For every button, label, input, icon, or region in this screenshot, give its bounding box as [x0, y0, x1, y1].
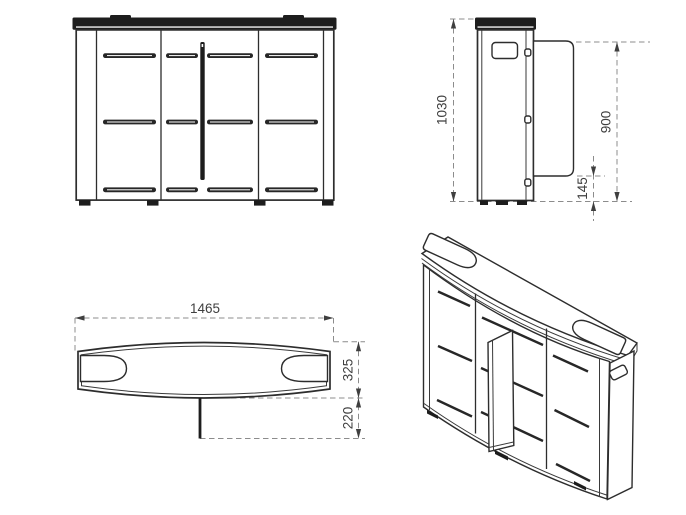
technical-drawing-canvas: 1030 900 145: [0, 0, 686, 515]
dim-label-door-top-height: 900: [599, 111, 614, 134]
cabinet-foot: [480, 201, 488, 206]
dim-label-door-open: 220: [341, 407, 356, 430]
dim-label-total-width: 1465: [190, 301, 220, 316]
top-view: 1465 325 220: [75, 301, 365, 439]
isometric-view: [422, 232, 638, 499]
door-slat-handle: [166, 187, 198, 192]
cabinet-foot: [496, 201, 508, 206]
hinge: [525, 116, 531, 123]
door-slat-handle: [103, 120, 156, 125]
top-cap-side: [475, 18, 536, 30]
door-slat-handle: [103, 187, 156, 192]
hinge: [525, 49, 531, 56]
hinge: [525, 179, 531, 186]
door-slat-handle: [265, 120, 318, 125]
door-slat-handle: [207, 53, 253, 58]
top-cap-highlight: [76, 26, 333, 27]
door-slat-handle: [207, 120, 253, 125]
door-slat-handle: [166, 53, 198, 58]
dim-total-width: 1465: [75, 301, 334, 321]
top-cap: [73, 18, 337, 30]
center-handle: [200, 42, 204, 180]
door-slat-handle: [103, 53, 156, 58]
cabinet-foot: [147, 200, 159, 206]
front-view: [73, 15, 337, 206]
drawing-svg: 1030 900 145: [0, 0, 686, 515]
door-slat-handle: [265, 187, 318, 192]
top-inset-right: [282, 356, 328, 382]
dim-label-depth: 325: [341, 359, 356, 382]
door-slat-handle: [265, 53, 318, 58]
top-inset-left: [81, 356, 127, 382]
dim-total-height: 1030: [435, 19, 457, 202]
door-slat-handle: [166, 120, 198, 125]
dim-door-bottom-offset: 145: [575, 156, 605, 221]
cabinet-foot: [322, 200, 334, 206]
iso-open-door: [488, 331, 514, 452]
cabinet-foot: [79, 200, 91, 206]
side-view: 1030 900 145: [435, 18, 651, 222]
dim-label-door-bottom-offset: 145: [575, 177, 590, 200]
center-handle-highlight: [202, 44, 204, 47]
open-door-side: [534, 41, 574, 176]
side-inset-panel: [492, 43, 518, 59]
door-slat-handle: [207, 187, 253, 192]
dim-label-total-height: 1030: [435, 95, 450, 125]
top-cap-highlight: [478, 26, 534, 27]
cabinet-foot: [254, 200, 266, 206]
cabinet-foot: [517, 201, 527, 206]
